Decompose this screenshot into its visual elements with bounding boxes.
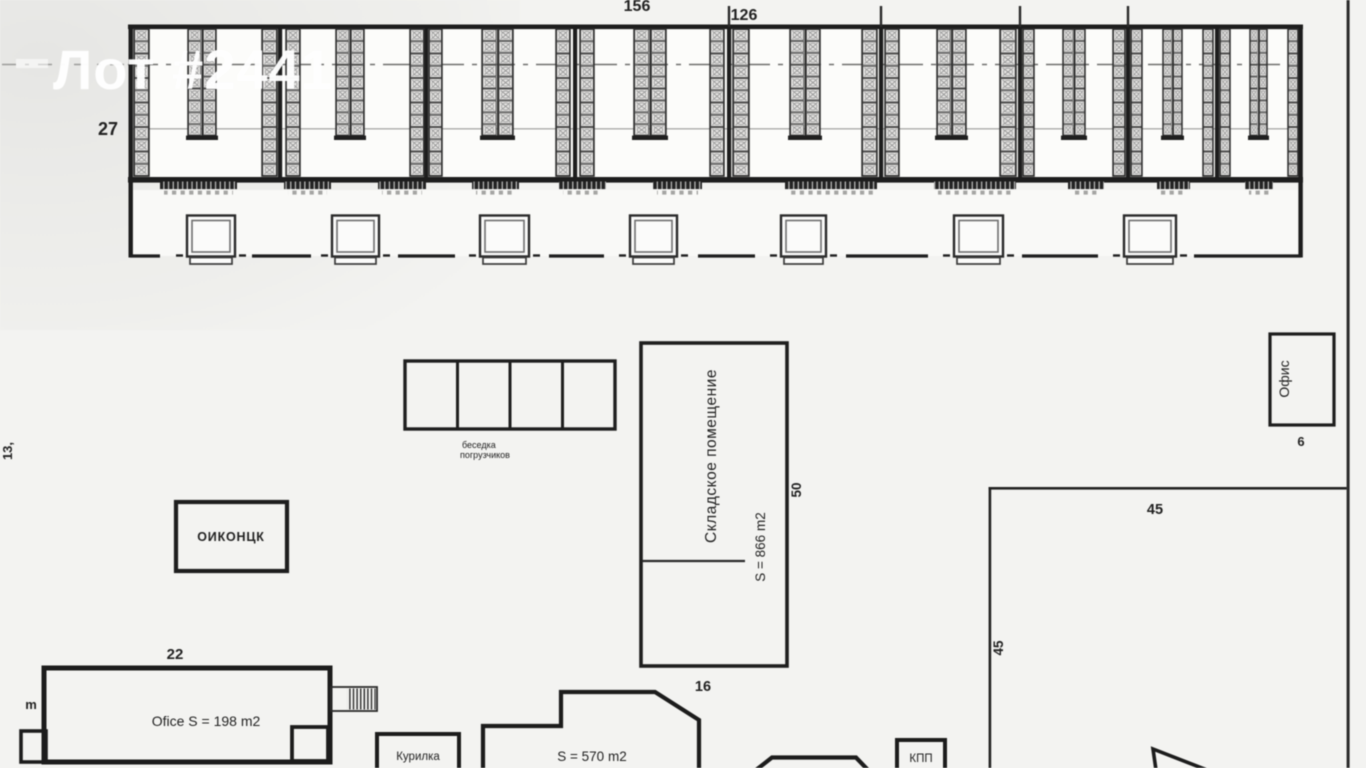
svg-text:13,: 13, [0,442,15,460]
svg-text:156: 156 [624,0,651,15]
svg-text:16: 16 [695,679,711,695]
svg-text:Курилка: Курилка [396,751,440,763]
svg-text:КПП: КПП [909,753,932,765]
svg-text:126: 126 [731,7,758,24]
svg-text:погрузчиков: погрузчиков [460,450,510,460]
svg-text:Лот #2441: Лот #2441 [53,38,333,101]
svg-text:45: 45 [991,640,1006,656]
svg-text:S = 570 m2: S = 570 m2 [557,749,626,764]
svg-text:Офис: Офис [1276,360,1292,397]
svg-text:S = 866 m2: S = 866 m2 [753,512,768,581]
svg-text:беседка: беседка [462,440,496,450]
svg-text:45: 45 [1147,502,1163,518]
svg-text:50: 50 [789,482,804,497]
svg-text:27: 27 [98,119,118,139]
svg-text:ОИКОНЦК: ОИКОНЦК [197,530,264,544]
svg-text:22: 22 [167,646,184,663]
svg-text:Ofice S = 198 m2: Ofice S = 198 m2 [152,713,261,729]
svg-text:m: m [25,697,37,712]
svg-text:6: 6 [1297,434,1304,449]
svg-text:Складское помещение: Складское помещение [703,369,720,543]
